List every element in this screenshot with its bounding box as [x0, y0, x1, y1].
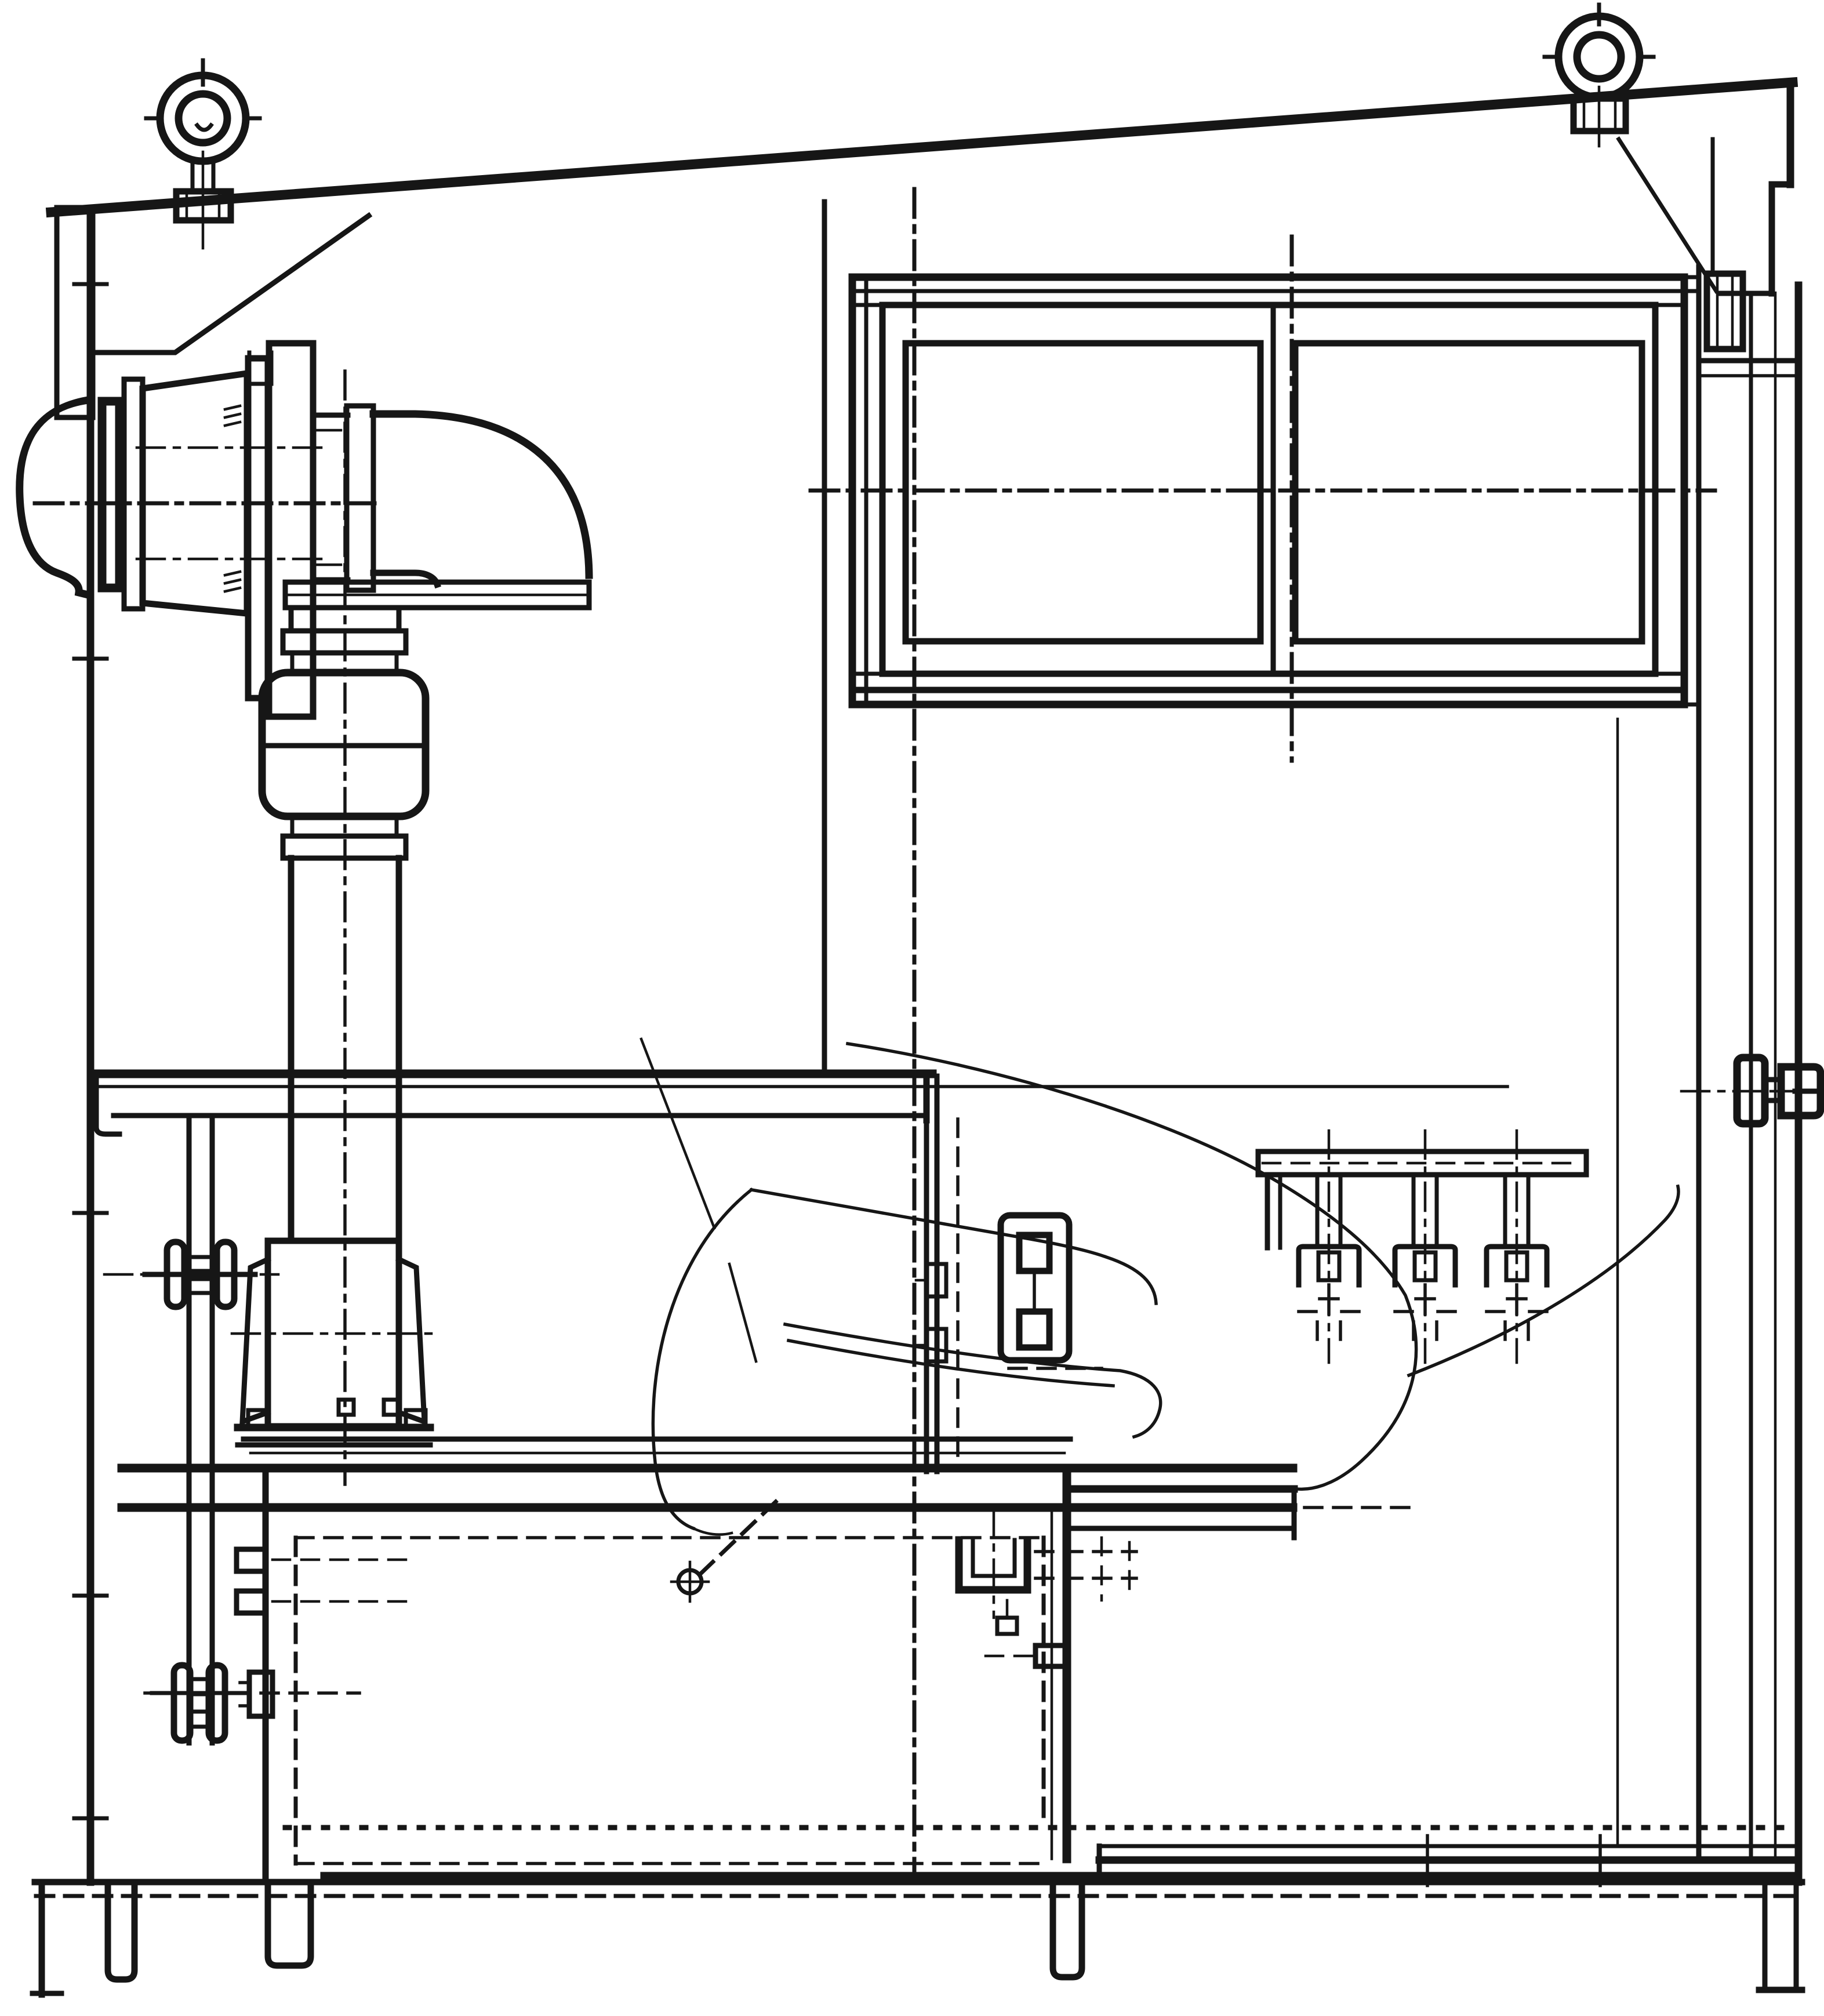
- right-fascia: [1619, 82, 1790, 293]
- right-lifting-eye-icon: [1545, 5, 1654, 146]
- tank-bolt: [237, 1591, 266, 1613]
- fan-housing: [143, 373, 247, 613]
- technical-drawing: Equipment cabin side elevation section d…: [0, 0, 1824, 2016]
- left-lifting-eye-icon: [146, 60, 260, 248]
- seat-pivot-symbol: [671, 1562, 708, 1601]
- tank: [122, 1400, 1293, 1882]
- tank-bolt: [237, 1549, 266, 1571]
- left-eave-bracket: [57, 208, 369, 417]
- operator-seat-phantom: [641, 1039, 1678, 1601]
- roof: [51, 82, 1793, 212]
- wall-bracket: [1258, 1131, 1586, 1363]
- bracket-clamp: [1395, 1131, 1455, 1363]
- vertical-duct: [291, 371, 399, 1484]
- drawing-sheet: Equipment cabin side elevation section d…: [0, 0, 1824, 2016]
- lower-sprocket: [174, 1665, 190, 1741]
- blower-mount-plate: [102, 401, 119, 588]
- platform-band: [1067, 1489, 1409, 1538]
- u-bracket: [959, 1508, 1136, 1618]
- bracket-clamp: [1299, 1131, 1359, 1363]
- elbow-inlet-collar: [347, 406, 373, 590]
- shelf: [95, 1074, 1507, 1134]
- fan-flange-plate-1: [248, 358, 268, 698]
- sliding-window: [811, 237, 1715, 761]
- support-legs: [32, 1882, 1802, 1995]
- motor-unit: [232, 1241, 436, 1445]
- outlet-box: [1001, 1215, 1102, 1368]
- partition-panel: [916, 1076, 958, 1472]
